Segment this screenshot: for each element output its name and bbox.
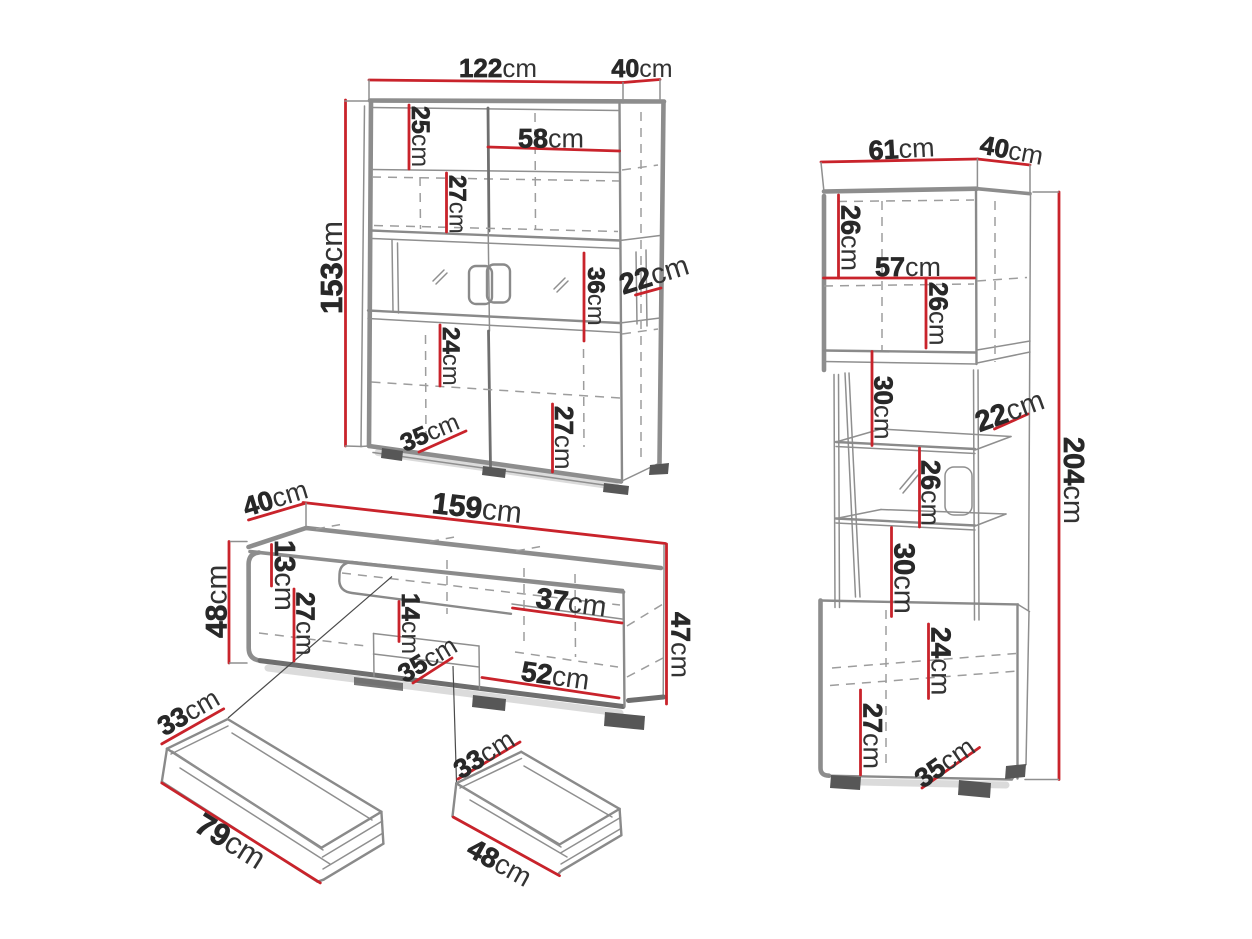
- svg-text:27cm: 27cm: [291, 592, 321, 656]
- svg-text:61cm: 61cm: [868, 132, 936, 165]
- svg-text:27cm: 27cm: [444, 175, 471, 234]
- svg-text:36cm: 36cm: [582, 267, 609, 326]
- svg-text:14cm: 14cm: [396, 593, 424, 654]
- svg-text:27cm: 27cm: [549, 406, 579, 470]
- svg-text:48cm: 48cm: [201, 565, 234, 638]
- svg-text:47cm: 47cm: [666, 612, 696, 678]
- svg-text:57cm: 57cm: [875, 252, 941, 282]
- svg-text:153cm: 153cm: [314, 221, 349, 314]
- svg-text:27cm: 27cm: [858, 703, 888, 769]
- svg-text:30cm: 30cm: [869, 376, 899, 440]
- svg-text:122cm: 122cm: [459, 53, 537, 83]
- svg-text:204cm: 204cm: [1057, 437, 1089, 524]
- svg-text:24cm: 24cm: [926, 627, 957, 695]
- svg-text:25cm: 25cm: [406, 106, 434, 167]
- svg-text:26cm: 26cm: [916, 460, 946, 526]
- svg-text:40cm: 40cm: [611, 55, 672, 83]
- svg-text:26cm: 26cm: [924, 282, 954, 346]
- svg-text:24cm: 24cm: [437, 327, 464, 386]
- svg-text:58cm: 58cm: [518, 124, 584, 154]
- svg-text:26cm: 26cm: [836, 205, 866, 271]
- svg-text:30cm: 30cm: [888, 543, 920, 614]
